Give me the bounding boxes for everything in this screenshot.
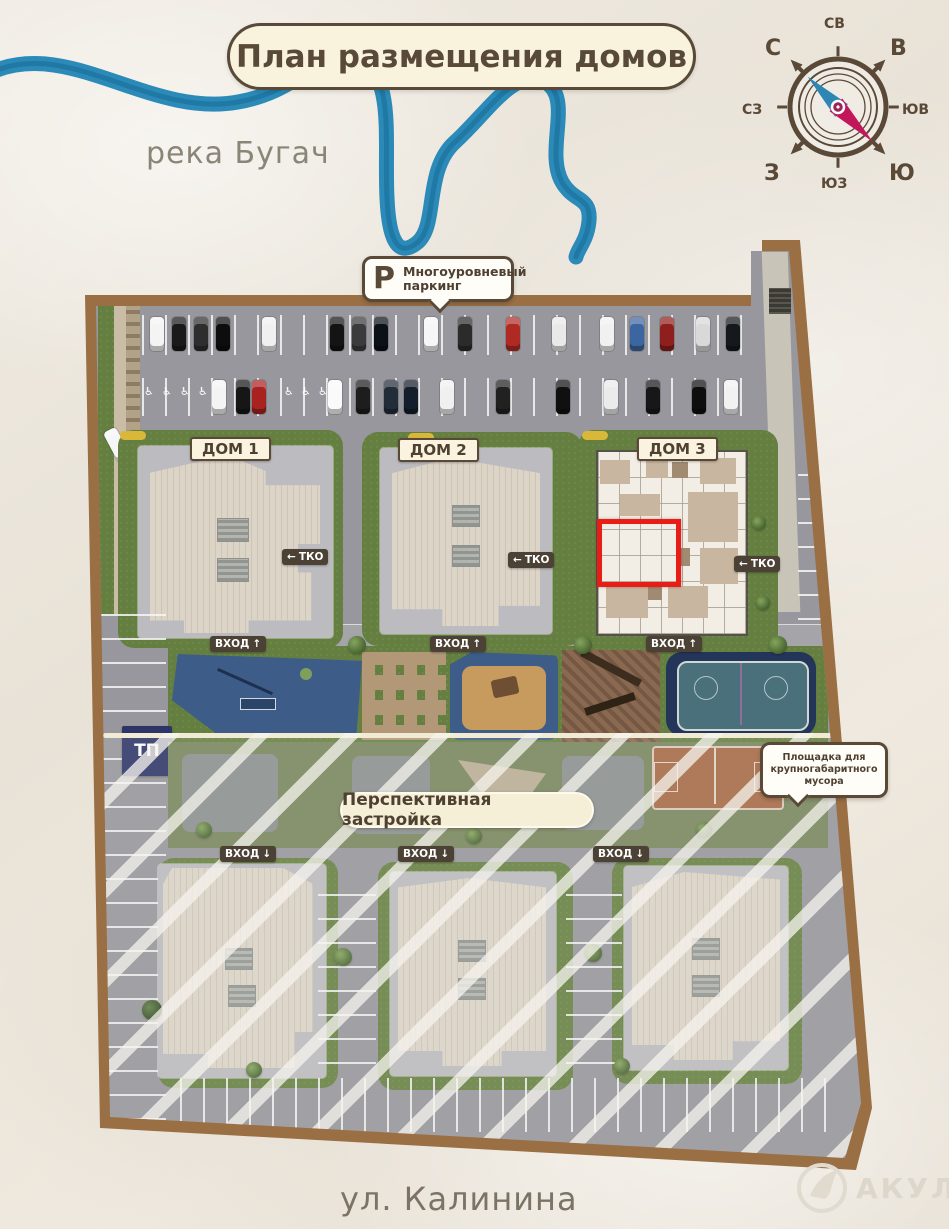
entrance-badge: ВХОД↓: [593, 846, 649, 862]
sand-area: [462, 666, 546, 730]
car-icon: [556, 380, 570, 414]
room: [600, 460, 630, 484]
car-icon: [172, 317, 186, 351]
room: [606, 584, 648, 618]
car-icon: [404, 380, 418, 414]
arrow-up-icon: ↑: [472, 638, 481, 650]
dom3-label: ДОМ 3: [637, 437, 718, 461]
roof-vent: [217, 558, 249, 582]
compass-sw: ЮЗ: [821, 176, 847, 192]
car-icon: [352, 317, 366, 351]
room: [646, 458, 668, 478]
car-icon: [236, 380, 250, 414]
car-icon: [252, 380, 266, 414]
parking-callout-line2: паркинг: [403, 279, 526, 293]
arrow-left-icon: ←: [513, 554, 522, 566]
compass-w: З: [764, 161, 780, 186]
tree-icon: [756, 596, 770, 610]
room: [668, 586, 708, 618]
tree-icon: [752, 516, 766, 530]
tree-icon: [574, 636, 592, 654]
roof-vent: [452, 505, 480, 527]
car-icon: [150, 317, 164, 351]
car-icon: [630, 317, 644, 351]
room: [688, 492, 738, 542]
car-icon: [384, 380, 398, 414]
car-icon: [424, 317, 438, 351]
perspective-label: Перспективная застройка: [340, 792, 594, 828]
rink-centerline: [740, 663, 742, 725]
car-icon: [458, 317, 472, 351]
arrow-up-icon: ↑: [688, 638, 697, 650]
room: [700, 458, 736, 484]
page-title: План размещения домов: [227, 23, 696, 90]
street-label: ул. Калинина: [340, 1180, 578, 1218]
room: [672, 462, 688, 478]
car-icon: [696, 317, 710, 351]
dom2-label: ДОМ 2: [398, 438, 479, 462]
shark-logo-icon: [792, 1158, 852, 1218]
car-icon: [356, 380, 370, 414]
curb-mark: [582, 431, 608, 440]
building-dom2: [392, 458, 540, 626]
arrow-up-icon: ↑: [252, 638, 261, 650]
curb-mark: [120, 431, 146, 440]
tree-icon: [769, 636, 787, 654]
roof-vent: [217, 518, 249, 542]
accessible-parking-icon: ♿: [144, 385, 154, 398]
grate: [769, 288, 791, 314]
dom1-label: ДОМ 1: [190, 437, 271, 461]
car-icon: [724, 380, 738, 414]
car-icon: [440, 380, 454, 414]
tko-badge: ←ТКО: [282, 549, 328, 565]
car-icon: [216, 317, 230, 351]
paved-grid: [362, 652, 446, 740]
car-icon: [496, 380, 510, 414]
car-icon: [646, 380, 660, 414]
compass-n: С: [765, 36, 781, 61]
entrance-badge: ВХОД↑: [646, 636, 702, 652]
car-icon: [328, 380, 342, 414]
garbage-line2: крупногабаритного: [770, 764, 877, 776]
accessible-parking-icon: ♿: [162, 385, 172, 398]
garbage-line3: мусора: [804, 776, 843, 788]
selected-apartment-highlight[interactable]: [597, 519, 681, 587]
arrow-down-icon: ↓: [440, 848, 449, 860]
arrow-left-icon: ←: [739, 558, 748, 570]
accessible-parking-icon: ♿: [180, 385, 190, 398]
car-icon: [726, 317, 740, 351]
car-icon: [330, 317, 344, 351]
room: [700, 548, 738, 584]
garbage-callout: Площадка для крупногабаритного мусора: [760, 742, 888, 798]
accessible-parking-icon: ♿: [301, 385, 311, 398]
tko-badge: ←ТКО: [734, 556, 780, 572]
accessible-parking-icon: ♿: [284, 385, 294, 398]
entrance-badge: ВХОД↓: [398, 846, 454, 862]
arrow-left-icon: ←: [287, 551, 296, 563]
garbage-line1: Площадка для: [783, 752, 866, 764]
roof-vent: [452, 545, 480, 567]
compass-e: В: [890, 36, 907, 61]
arrow-down-icon: ↓: [635, 848, 644, 860]
site-plan-page: река Бугач: [0, 0, 949, 1229]
entrance-badge: ВХОД↓: [220, 846, 276, 862]
car-icon: [604, 380, 618, 414]
car-icon: [374, 317, 388, 351]
parking-callout-line1: Многоуровневый: [403, 265, 526, 279]
car-icon: [194, 317, 208, 351]
car-icon: [660, 317, 674, 351]
car-icon: [692, 380, 706, 414]
car-icon: [552, 317, 566, 351]
accessible-parking-icon: ♿: [318, 385, 328, 398]
rink-circle: [764, 676, 788, 700]
compass-nw: СЗ: [742, 102, 762, 118]
compass-ne: СВ: [824, 16, 845, 32]
entrance-badge: ВХОД↑: [430, 636, 486, 652]
rink-circle: [694, 676, 718, 700]
car-icon: [212, 380, 226, 414]
accessible-parking-icon: ♿: [198, 385, 208, 398]
room: [620, 494, 660, 516]
tko-badge: ←ТКО: [508, 552, 554, 568]
car-icon: [506, 317, 520, 351]
playground-equipment: [240, 698, 276, 710]
tree-icon: [348, 636, 366, 654]
entrance-badge: ВХОД↑: [210, 636, 266, 652]
river-label: река Бугач: [146, 136, 330, 171]
car-icon: [262, 317, 276, 351]
watermark-label: АКУЛА: [856, 1172, 949, 1205]
car-icon: [600, 317, 614, 351]
parking-icon: P: [373, 264, 395, 294]
parking-wall: [126, 302, 140, 430]
playground-equipment: [300, 668, 312, 680]
compass-s: Ю: [889, 161, 915, 186]
compass-se: ЮВ: [902, 102, 929, 118]
arrow-down-icon: ↓: [262, 848, 271, 860]
